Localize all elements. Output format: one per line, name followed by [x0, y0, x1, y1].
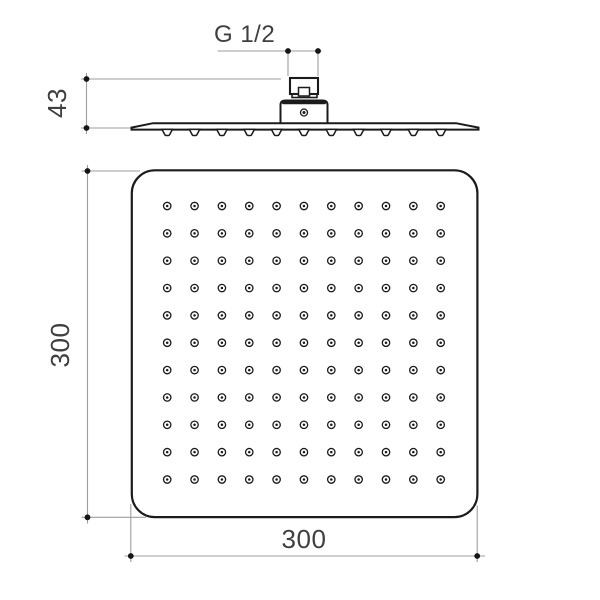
side-nozzle: [189, 129, 199, 135]
plate-profile: [132, 123, 479, 129]
nozzle-center: [248, 424, 251, 427]
side-nozzle: [326, 129, 336, 135]
nozzle-center: [166, 424, 169, 427]
side-nozzle: [436, 129, 446, 135]
nozzle-center: [412, 369, 415, 372]
nozzle-center: [303, 259, 306, 262]
nozzle-center: [357, 287, 360, 290]
nozzle-center: [248, 396, 251, 399]
nozzle-center: [357, 478, 360, 481]
nozzle-center: [275, 451, 278, 454]
nozzle-center: [275, 478, 278, 481]
nozzle-center: [193, 259, 196, 262]
nozzle-center: [385, 342, 388, 345]
nozzle-center: [275, 259, 278, 262]
front-view: [132, 170, 478, 517]
nozzle-center: [248, 232, 251, 235]
nozzle-center: [248, 342, 251, 345]
nozzle-center: [357, 369, 360, 372]
nozzle-center: [193, 232, 196, 235]
nozzle-center: [166, 314, 169, 317]
nozzle-center: [275, 232, 278, 235]
nozzle-center: [221, 369, 224, 372]
nozzle-center: [412, 451, 415, 454]
nozzle-center: [357, 342, 360, 345]
nozzle-center: [385, 205, 388, 208]
nozzle-center: [439, 396, 442, 399]
nozzle-center: [248, 287, 251, 290]
nozzle-center: [439, 314, 442, 317]
nozzle-center: [303, 369, 306, 372]
side-nozzle: [162, 129, 172, 135]
nozzle-center: [412, 232, 415, 235]
nozzle-center: [357, 396, 360, 399]
nozzle-center: [275, 424, 278, 427]
nozzle-center: [193, 369, 196, 372]
nozzle-center: [193, 287, 196, 290]
nozzle-center: [221, 314, 224, 317]
nozzle-center: [330, 478, 333, 481]
nozzle-center: [303, 478, 306, 481]
nozzle-center: [412, 478, 415, 481]
connector-tab: [299, 88, 310, 97]
nozzle-center: [412, 205, 415, 208]
nozzle-center: [357, 259, 360, 262]
side-nozzle: [299, 129, 309, 135]
nozzle-center: [193, 314, 196, 317]
nozzle-center: [303, 451, 306, 454]
nozzle-center: [385, 396, 388, 399]
nozzle-center: [248, 451, 251, 454]
nozzle-center: [439, 232, 442, 235]
nozzle-center: [221, 205, 224, 208]
side-nozzle: [244, 129, 254, 135]
nozzle-center: [303, 205, 306, 208]
nozzle-center: [330, 314, 333, 317]
side-nozzle: [353, 129, 363, 135]
nozzle-center: [439, 478, 442, 481]
nozzle-center: [248, 478, 251, 481]
nozzle-center: [275, 342, 278, 345]
nozzle-center: [221, 232, 224, 235]
nozzle-center: [357, 205, 360, 208]
nozzle-center: [303, 342, 306, 345]
nozzle-center: [330, 259, 333, 262]
nozzle-center: [221, 424, 224, 427]
thread-dimension: [218, 48, 322, 76]
side-height-dimension-label: 43: [39, 85, 75, 121]
nozzle-center: [221, 478, 224, 481]
base-screw-center: [303, 111, 306, 114]
nozzle-center: [330, 342, 333, 345]
front-height-dimension-label: 300: [36, 321, 84, 369]
nozzle-center: [303, 287, 306, 290]
nozzle-center: [275, 287, 278, 290]
nozzle-center: [166, 287, 169, 290]
nozzle-center: [330, 424, 333, 427]
nozzle-center: [357, 314, 360, 317]
nozzle-center: [357, 232, 360, 235]
nozzle-center: [221, 396, 224, 399]
nozzle-center: [275, 314, 278, 317]
nozzle-center: [303, 314, 306, 317]
nozzle-center: [303, 396, 306, 399]
nozzle-center: [439, 342, 442, 345]
nozzle-center: [193, 205, 196, 208]
nozzle-center: [193, 451, 196, 454]
nozzle-center: [193, 424, 196, 427]
nozzle-center: [275, 205, 278, 208]
nozzle-center: [439, 451, 442, 454]
nozzle-center: [439, 287, 442, 290]
nozzle-center: [193, 342, 196, 345]
nozzle-center: [412, 287, 415, 290]
side-view: [132, 78, 479, 136]
nozzle-center: [166, 342, 169, 345]
nozzle-center: [412, 314, 415, 317]
nozzle-center: [412, 424, 415, 427]
nozzle-center: [439, 259, 442, 262]
side-nozzle: [271, 129, 281, 135]
nozzle-center: [248, 369, 251, 372]
nozzle-center: [357, 424, 360, 427]
nozzle-center: [330, 287, 333, 290]
connector-base-top-band: [282, 101, 326, 104]
side-nozzle: [408, 129, 418, 135]
nozzle-center: [412, 342, 415, 345]
nozzle-center: [275, 369, 278, 372]
nozzle-center: [221, 259, 224, 262]
nozzle-center: [221, 287, 224, 290]
nozzle-center: [330, 205, 333, 208]
nozzle-center: [412, 259, 415, 262]
nozzle-center: [248, 205, 251, 208]
nozzle-center: [275, 396, 278, 399]
nozzle-center: [193, 478, 196, 481]
nozzle-center: [439, 205, 442, 208]
nozzle-center: [330, 451, 333, 454]
nozzle-center: [221, 451, 224, 454]
nozzle-center: [330, 369, 333, 372]
nozzle-center: [303, 232, 306, 235]
nozzle-center: [357, 451, 360, 454]
nozzle-center: [330, 396, 333, 399]
technical-drawing-canvas: G 1/2 43 300 300: [0, 0, 600, 600]
nozzle-center: [248, 259, 251, 262]
nozzle-center: [385, 232, 388, 235]
nozzle-center: [412, 396, 415, 399]
nozzle-center: [166, 396, 169, 399]
nozzle-center: [166, 478, 169, 481]
nozzle-center: [166, 369, 169, 372]
nozzle-center: [166, 205, 169, 208]
nozzle-center: [385, 424, 388, 427]
nozzle-center: [166, 451, 169, 454]
nozzle-center: [221, 342, 224, 345]
nozzle-center: [385, 259, 388, 262]
nozzle-center: [248, 314, 251, 317]
nozzle-center: [385, 314, 388, 317]
nozzle-center: [303, 424, 306, 427]
nozzle-center: [166, 232, 169, 235]
shower-head-drawing: [0, 0, 600, 600]
side-nozzle: [381, 129, 391, 135]
front-width-dimension-label: 300: [278, 525, 330, 553]
nozzle-center: [193, 396, 196, 399]
nozzle-center: [385, 478, 388, 481]
thread-size-label: G 1/2: [214, 20, 284, 50]
nozzle-center: [385, 287, 388, 290]
nozzle-center: [166, 259, 169, 262]
side-nozzle: [217, 129, 227, 135]
nozzle-center: [385, 369, 388, 372]
nozzle-center: [385, 451, 388, 454]
nozzle-center: [439, 369, 442, 372]
nozzle-center: [439, 424, 442, 427]
nozzle-center: [330, 232, 333, 235]
